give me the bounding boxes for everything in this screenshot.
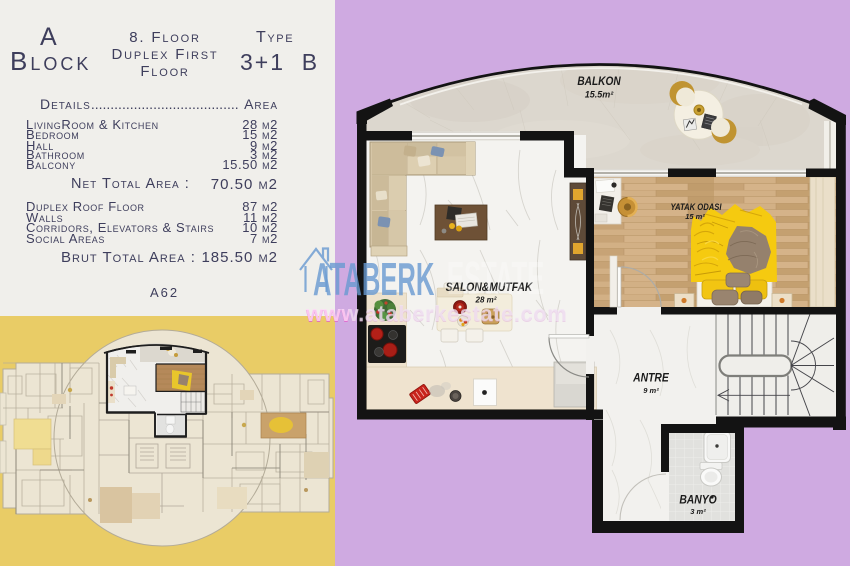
svg-text:15 m²: 15 m² (685, 212, 705, 221)
svg-text:ESTATE: ESTATE (447, 252, 544, 304)
svg-text:3 m²: 3 m² (690, 507, 706, 516)
svg-text:ANTRE: ANTRE (632, 372, 669, 385)
svg-text:ATABERK: ATABERK (313, 253, 434, 305)
svg-text:15.5m²: 15.5m² (585, 90, 615, 100)
svg-text:9 m²: 9 m² (643, 386, 659, 395)
svg-text:BANYO: BANYO (679, 494, 717, 507)
svg-text:BALKON: BALKON (577, 75, 620, 88)
svg-text:YATAK ODASI: YATAK ODASI (671, 201, 723, 212)
